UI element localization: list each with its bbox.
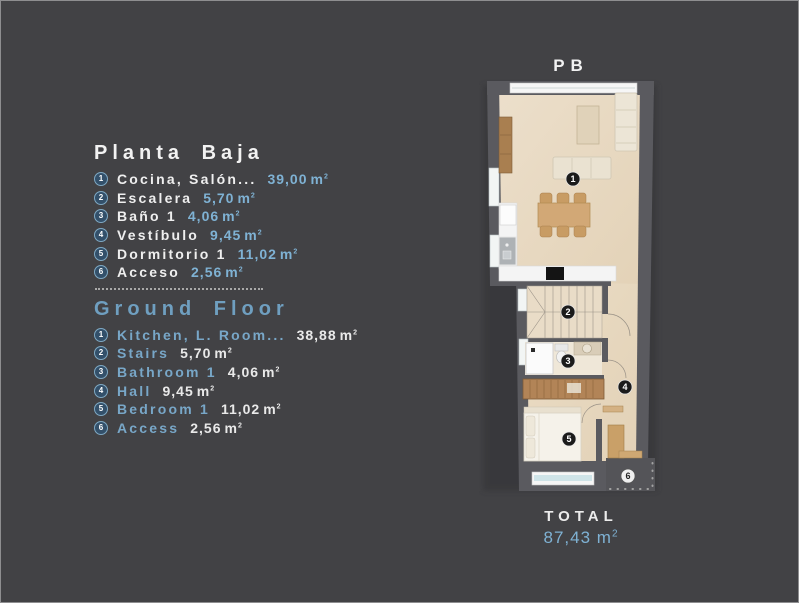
list-item: 1 Cocina, Salón... 39,00m2 — [94, 170, 424, 189]
area-unit: m2 — [214, 345, 232, 361]
area-unit: m2 — [244, 227, 262, 243]
pillow — [526, 438, 535, 458]
fridge — [500, 205, 516, 225]
area-unit: m2 — [225, 420, 243, 436]
item-label: Stairs — [117, 345, 169, 361]
list-item: 2 Escalera 5,70m2 — [94, 189, 424, 208]
list-item: 3 Baño 1 4,06m2 — [94, 207, 424, 226]
area-unit: m2 — [262, 364, 280, 380]
item-area: 39,00m2 — [267, 171, 328, 187]
sideboard — [603, 406, 623, 412]
plan-marker-5: 5 — [562, 432, 576, 446]
list-item: 4 Vestíbulo 9,45m2 — [94, 226, 424, 245]
area-unit: m2 — [237, 190, 255, 206]
item-label: Kitchen, L. Room... — [117, 327, 286, 343]
shower-drain — [531, 348, 535, 352]
item-number-badge: 4 — [94, 384, 108, 398]
cooktop — [546, 267, 564, 280]
dining-table — [538, 203, 590, 227]
item-label: Dormitorio 1 — [117, 246, 227, 262]
item-number-badge: 5 — [94, 247, 108, 261]
svg-text:2: 2 — [565, 307, 570, 317]
area-value: 4,06 — [228, 364, 259, 380]
wardrobe — [523, 379, 604, 399]
list-item: 4 Hall 9,45m2 — [94, 381, 424, 400]
svg-text:5: 5 — [566, 434, 571, 444]
svg-text:6: 6 — [625, 471, 630, 481]
chair — [557, 226, 569, 237]
item-label: Baño 1 — [117, 208, 177, 224]
entry-door — [619, 451, 642, 458]
wardrobe-shelf — [567, 383, 581, 393]
area-value: 2,56 — [191, 264, 222, 280]
floor-plan-page: Planta Baja 1 Cocina, Salón... 39,00m2 2… — [0, 0, 799, 603]
planta-baja-list: 1 Cocina, Salón... 39,00m2 2 Escalera 5,… — [94, 170, 424, 282]
list-item: 6 Acceso 2,56m2 — [94, 263, 424, 282]
item-area: 11,02m2 — [221, 401, 282, 417]
item-label: Access — [117, 420, 179, 436]
area-unit: m2 — [263, 401, 281, 417]
sofa-center — [553, 157, 611, 179]
item-label: Hall — [117, 383, 151, 399]
area-value: 39,00 — [267, 171, 307, 187]
item-number-badge: 2 — [94, 346, 108, 360]
area-value: 11,02 — [221, 401, 260, 417]
item-label: Cocina, Salón... — [117, 171, 256, 187]
window-left-1 — [489, 168, 499, 206]
area-unit: m2 — [222, 208, 240, 224]
plan-marker-1: 1 — [566, 172, 580, 186]
area-unit: m2 — [225, 264, 243, 280]
list-item: 3 Bathroom 1 4,06m2 — [94, 363, 424, 382]
toilet-tank — [555, 344, 568, 351]
plan-marker-6: 6 — [621, 469, 635, 483]
separator-dots — [95, 288, 263, 290]
washbasin — [583, 344, 592, 353]
item-area: 2,56m2 — [191, 264, 244, 280]
total-area-value: 87,43 — [543, 528, 591, 547]
area-unit: m2 — [340, 327, 358, 343]
plan-marker-3: 3 — [561, 354, 575, 368]
area-value: 2,56 — [190, 420, 221, 436]
window-left-3 — [518, 289, 527, 311]
item-area: 11,02m2 — [238, 246, 299, 262]
area-value: 9,45 — [162, 383, 193, 399]
item-number-badge: 4 — [94, 228, 108, 242]
svg-text:1: 1 — [570, 174, 575, 184]
item-number-badge: 2 — [94, 191, 108, 205]
total-block: TOTAL 87,43 m2 — [535, 508, 627, 548]
item-number-badge: 3 — [94, 209, 108, 223]
item-area: 4,06m2 — [228, 364, 281, 380]
item-area: 9,45m2 — [210, 227, 263, 243]
total-value: 87,43 m2 — [535, 528, 627, 548]
item-label: Acceso — [117, 264, 180, 280]
shower — [526, 343, 553, 374]
item-number-badge: 6 — [94, 265, 108, 279]
item-label: Bedroom 1 — [117, 401, 210, 417]
list-item: 5 Bedroom 1 11,02m2 — [94, 400, 424, 419]
window-bottom-glass — [534, 475, 592, 481]
plan-marker-2: 2 — [561, 305, 575, 319]
total-area-unit: m2 — [597, 528, 619, 547]
area-value: 5,70 — [203, 190, 234, 206]
area-value: 11,02 — [238, 246, 277, 262]
tall-cabinet — [499, 117, 512, 173]
total-label: TOTAL — [535, 508, 627, 525]
item-area: 9,45m2 — [162, 383, 215, 399]
area-unit: m2 — [197, 383, 215, 399]
legend-panel: Planta Baja 1 Cocina, Salón... 39,00m2 2… — [94, 141, 424, 439]
item-label: Vestíbulo — [117, 227, 199, 243]
coffee-table — [577, 106, 599, 144]
list-item: 6 Access 2,56m2 — [94, 419, 424, 438]
item-number-badge: 1 — [94, 172, 108, 186]
list-item: 5 Dormitorio 1 11,02m2 — [94, 244, 424, 263]
svg-text:3: 3 — [565, 356, 570, 366]
item-number-badge: 1 — [94, 328, 108, 342]
item-area: 38,88m2 — [297, 327, 358, 343]
chair — [540, 193, 552, 204]
area-value: 38,88 — [297, 327, 337, 343]
item-area: 2,56m2 — [190, 420, 243, 436]
list-item: 2 Stairs 5,70m2 — [94, 344, 424, 363]
item-area: 5,70m2 — [180, 345, 233, 361]
dining-set — [538, 193, 590, 237]
area-value: 4,06 — [188, 208, 219, 224]
area-value: 5,70 — [180, 345, 211, 361]
area-value: 9,45 — [210, 227, 241, 243]
item-area: 4,06m2 — [188, 208, 241, 224]
item-number-badge: 6 — [94, 421, 108, 435]
chair — [557, 193, 569, 204]
floor-plan-drawing: 1 2 3 4 5 6 — [479, 73, 669, 503]
ground-floor-list: 1 Kitchen, L. Room... 38,88m2 2 Stairs 5… — [94, 326, 424, 438]
chair — [540, 226, 552, 237]
list-item: 1 Kitchen, L. Room... 38,88m2 — [94, 326, 424, 345]
svg-text:4: 4 — [622, 382, 627, 392]
item-number-badge: 3 — [94, 365, 108, 379]
sofa-right — [615, 93, 637, 151]
item-number-badge: 5 — [94, 402, 108, 416]
area-unit: m2 — [280, 246, 298, 262]
item-label: Bathroom 1 — [117, 364, 217, 380]
item-area: 5,70m2 — [203, 190, 256, 206]
area-unit: m2 — [311, 171, 329, 187]
plan-marker-4: 4 — [618, 380, 632, 394]
pillow — [526, 416, 535, 436]
ground-floor-title: Ground Floor — [94, 297, 424, 321]
chair — [574, 226, 586, 237]
window-left-2 — [490, 235, 499, 267]
planta-baja-title: Planta Baja — [94, 141, 424, 165]
item-label: Escalera — [117, 190, 192, 206]
chair — [574, 193, 586, 204]
